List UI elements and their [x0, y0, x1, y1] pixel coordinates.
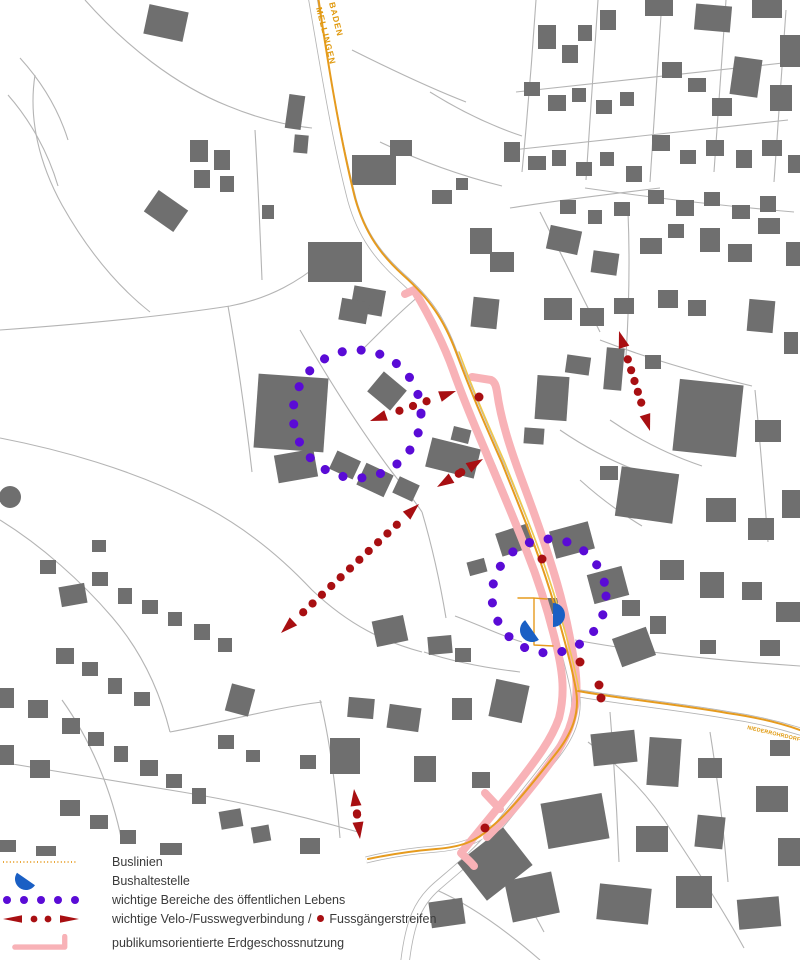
- building: [285, 94, 306, 130]
- building: [712, 98, 732, 116]
- building: [92, 540, 106, 552]
- map-page: BADEN MELLINGEN NIEDERROHRDORF Buslinien…: [0, 0, 800, 960]
- building: [262, 205, 274, 219]
- building: [698, 758, 722, 778]
- route-dot: [634, 388, 642, 396]
- road-line: [424, 652, 520, 672]
- legend-label-bushaltestelle: Bushaltestelle: [112, 874, 190, 888]
- building: [114, 746, 128, 762]
- building: [732, 205, 750, 219]
- building: [615, 466, 679, 524]
- legend: Buslinien Bushaltestelle wichtige Bereic…: [0, 852, 480, 954]
- building: [590, 730, 637, 766]
- arrowhead: [351, 789, 362, 807]
- building: [390, 140, 412, 156]
- building: [760, 196, 776, 212]
- building: [646, 737, 681, 787]
- building: [572, 88, 586, 102]
- building: [254, 374, 329, 453]
- building: [620, 92, 634, 106]
- building: [645, 0, 673, 16]
- building: [308, 242, 362, 282]
- bus-stop-marker: [515, 620, 539, 647]
- building: [120, 830, 136, 844]
- building: [622, 600, 640, 616]
- building: [504, 142, 520, 162]
- building: [762, 140, 782, 156]
- route-dot: [346, 564, 354, 572]
- building: [576, 162, 592, 176]
- building: [728, 244, 752, 262]
- road-line: [33, 75, 150, 312]
- route-dot: [630, 377, 638, 385]
- route-dot: [355, 556, 363, 564]
- building: [758, 218, 780, 234]
- road-line: [710, 732, 728, 882]
- building-round: [0, 486, 21, 508]
- building: [118, 588, 132, 604]
- road-line: [255, 130, 262, 280]
- building: [455, 648, 471, 662]
- building: [88, 732, 104, 746]
- route-dot: [624, 355, 632, 363]
- building: [614, 298, 634, 314]
- building: [648, 190, 664, 204]
- legend-row-velo: wichtige Velo-/Fusswegverbindung /Fussgä…: [0, 909, 480, 928]
- arrowhead: [438, 391, 456, 402]
- building: [92, 572, 108, 586]
- legend-label-bereiche: wichtige Bereiche des öffentlichen Leben…: [112, 893, 345, 907]
- building: [652, 135, 670, 151]
- building: [90, 815, 108, 829]
- arrowhead: [403, 504, 419, 520]
- building: [82, 662, 98, 676]
- building: [600, 152, 614, 166]
- building: [770, 85, 792, 111]
- building: [168, 612, 182, 626]
- legend-row-erdgeschoss: publikumsorientierte Erdgeschossnutzung: [0, 932, 480, 954]
- building: [565, 354, 591, 375]
- building: [546, 225, 582, 255]
- building: [166, 774, 182, 788]
- building: [778, 838, 800, 866]
- velo-route-arrow-swatch-icon: [0, 910, 100, 928]
- building: [0, 745, 14, 765]
- crossing-dot-icon: [317, 915, 324, 922]
- building: [596, 100, 612, 114]
- road-line: [650, 0, 662, 182]
- building: [140, 760, 158, 776]
- building: [562, 45, 578, 63]
- building: [218, 638, 232, 652]
- building: [578, 25, 592, 41]
- route-dot: [365, 547, 373, 555]
- building: [330, 738, 360, 774]
- building: [544, 298, 572, 320]
- building: [591, 250, 620, 275]
- route-dot: [337, 573, 345, 581]
- route-dot: [422, 397, 430, 405]
- building: [528, 156, 546, 170]
- building: [700, 640, 716, 654]
- building: [756, 786, 788, 812]
- building: [0, 688, 14, 708]
- arrowhead: [640, 413, 651, 431]
- building: [488, 679, 529, 723]
- building: [540, 793, 609, 849]
- building: [742, 582, 762, 600]
- building: [190, 140, 208, 162]
- legend-row-bereiche: wichtige Bereiche des öffentlichen Leben…: [0, 890, 480, 909]
- building: [776, 602, 800, 622]
- building: [225, 683, 255, 716]
- route-dot: [393, 521, 401, 529]
- building: [386, 704, 421, 732]
- building: [560, 200, 576, 214]
- road-line: [85, 0, 312, 128]
- pedestrian-crossing-dot: [576, 658, 585, 667]
- building: [614, 202, 630, 216]
- building: [40, 560, 56, 574]
- building: [0, 840, 16, 852]
- pedestrian-crossing-dot: [475, 393, 484, 402]
- building: [214, 150, 230, 170]
- building: [688, 300, 706, 316]
- building: [672, 379, 743, 457]
- building: [367, 371, 407, 410]
- building: [676, 200, 694, 216]
- building: [30, 760, 50, 778]
- legend-label-velo-pre: wichtige Velo-/Fusswegverbindung /: [112, 912, 311, 926]
- public-life-dots-swatch-icon: [0, 891, 100, 909]
- building: [425, 437, 481, 478]
- building: [612, 627, 656, 668]
- legend-label-erdgeschoss: publikumsorientierte Erdgeschossnutzung: [112, 936, 344, 950]
- building: [680, 150, 696, 164]
- building: [786, 242, 800, 266]
- pedestrian-crossing-dot: [595, 681, 604, 690]
- building: [694, 815, 725, 850]
- building: [780, 35, 800, 67]
- arrowhead: [370, 410, 388, 421]
- pedestrian-crossing-dot: [481, 824, 490, 833]
- building: [662, 62, 682, 78]
- legend-row-bushaltestelle: Bushaltestelle: [0, 871, 480, 890]
- building: [144, 190, 188, 232]
- route-dot: [395, 407, 403, 415]
- building: [548, 95, 566, 111]
- route-dot: [318, 591, 326, 599]
- building: [194, 170, 210, 188]
- building: [392, 476, 420, 502]
- building: [143, 4, 188, 42]
- pedestrian-crossing-dot: [597, 694, 606, 703]
- building: [28, 700, 48, 718]
- route-dot: [299, 608, 307, 616]
- building: [588, 210, 602, 224]
- building: [524, 82, 540, 96]
- bus-stop-swatch-icon: [0, 872, 100, 890]
- legend-row-buslinien: Buslinien: [0, 852, 480, 871]
- building: [251, 825, 272, 844]
- road-line: [228, 306, 252, 472]
- building: [596, 883, 651, 924]
- arrowhead: [437, 473, 454, 487]
- building: [580, 308, 604, 326]
- building: [108, 678, 122, 694]
- building: [755, 420, 781, 442]
- building: [668, 224, 684, 238]
- road-line: [512, 120, 788, 150]
- building: [466, 558, 487, 576]
- building: [414, 756, 436, 782]
- building: [218, 735, 234, 749]
- route-dot: [374, 538, 382, 546]
- building: [192, 788, 206, 804]
- building: [784, 332, 798, 354]
- building: [782, 490, 800, 518]
- road-line: [0, 262, 322, 330]
- building: [552, 150, 566, 166]
- building: [700, 228, 720, 252]
- arrowhead: [353, 821, 364, 839]
- building: [788, 155, 800, 173]
- route-dot: [409, 402, 417, 410]
- building: [372, 615, 409, 647]
- building: [352, 155, 396, 185]
- building: [432, 190, 452, 204]
- building: [523, 427, 544, 444]
- building: [748, 518, 774, 540]
- building: [300, 755, 316, 769]
- legend-label-buslinien: Buslinien: [112, 855, 163, 869]
- building: [650, 616, 666, 634]
- road-line: [422, 512, 446, 618]
- arrowhead: [281, 617, 297, 633]
- route-dot: [627, 366, 635, 374]
- building: [535, 375, 570, 421]
- ground-floor-use-swatch-icon: [0, 934, 100, 952]
- building: [736, 150, 752, 168]
- bus-line-swatch-icon: [0, 853, 100, 871]
- route-dot: [353, 810, 361, 818]
- building: [729, 56, 762, 98]
- building: [760, 640, 780, 656]
- building: [549, 521, 595, 558]
- road-line: [626, 212, 629, 356]
- building: [219, 808, 244, 830]
- building: [700, 572, 724, 598]
- building: [676, 876, 712, 908]
- map-canvas: BADEN MELLINGEN NIEDERROHRDORF: [0, 0, 800, 960]
- building: [660, 560, 684, 580]
- building: [706, 498, 736, 522]
- building: [451, 426, 472, 444]
- building: [472, 772, 490, 788]
- building: [737, 896, 781, 930]
- building: [636, 826, 668, 852]
- route-dot: [327, 582, 335, 590]
- route-dot: [383, 529, 391, 537]
- building: [704, 192, 720, 206]
- building: [452, 698, 472, 720]
- building: [62, 718, 80, 734]
- building: [347, 697, 375, 719]
- building: [490, 252, 514, 272]
- building: [603, 347, 625, 390]
- building: [747, 299, 776, 333]
- building: [538, 25, 556, 49]
- building: [626, 166, 642, 182]
- building: [142, 600, 158, 614]
- building: [770, 740, 790, 756]
- building: [752, 0, 782, 18]
- road-line: [20, 58, 68, 140]
- building: [640, 238, 662, 254]
- building: [427, 635, 452, 655]
- building: [60, 800, 80, 816]
- building: [645, 355, 661, 369]
- road-line: [0, 762, 358, 832]
- building: [293, 134, 309, 153]
- building: [220, 176, 234, 192]
- building: [694, 3, 732, 32]
- route-dot: [637, 399, 645, 407]
- route-dot: [457, 468, 465, 476]
- road-line: [430, 92, 522, 136]
- building: [56, 648, 74, 664]
- building: [456, 178, 468, 190]
- legend-label-velo: wichtige Velo-/Fusswegverbindung /Fussgä…: [112, 912, 436, 926]
- building: [706, 140, 724, 156]
- building: [470, 228, 492, 254]
- building: [471, 297, 500, 330]
- pedestrian-crossing-dot: [538, 555, 547, 564]
- road-line: [352, 50, 466, 102]
- ground-floor-band: [485, 793, 500, 809]
- building: [600, 10, 616, 30]
- building: [688, 78, 706, 92]
- building: [246, 750, 260, 762]
- road-line: [0, 438, 422, 652]
- building: [58, 583, 87, 607]
- route-dot: [308, 599, 316, 607]
- legend-label-velo-post: Fussgängerstreifen: [329, 912, 436, 926]
- building: [134, 692, 150, 706]
- road-line: [510, 188, 660, 208]
- building: [600, 466, 618, 480]
- building: [194, 624, 210, 640]
- building: [658, 290, 678, 308]
